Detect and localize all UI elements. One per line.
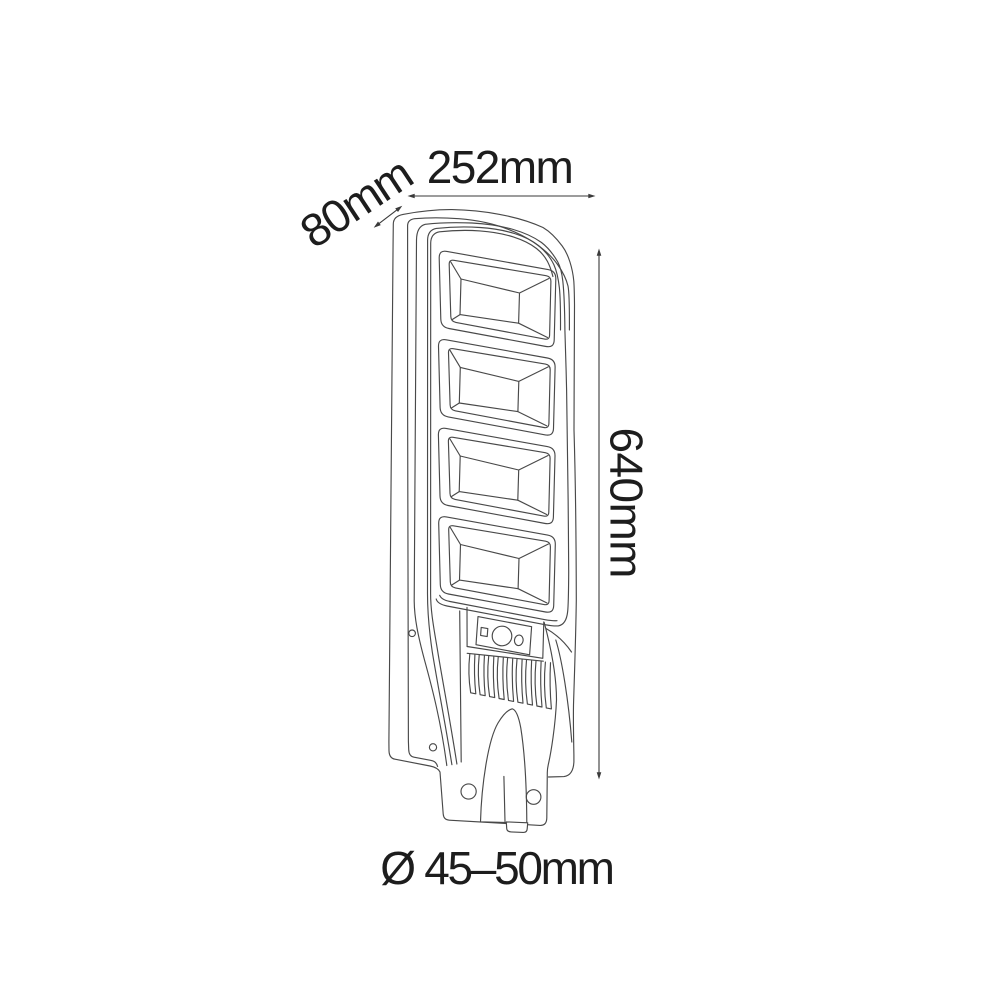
svg-text:640mm: 640mm — [601, 428, 653, 578]
svg-text:80mm: 80mm — [291, 147, 421, 257]
svg-text:Ø 45–50mm: Ø 45–50mm — [380, 842, 612, 894]
svg-text:252mm: 252mm — [427, 141, 572, 193]
